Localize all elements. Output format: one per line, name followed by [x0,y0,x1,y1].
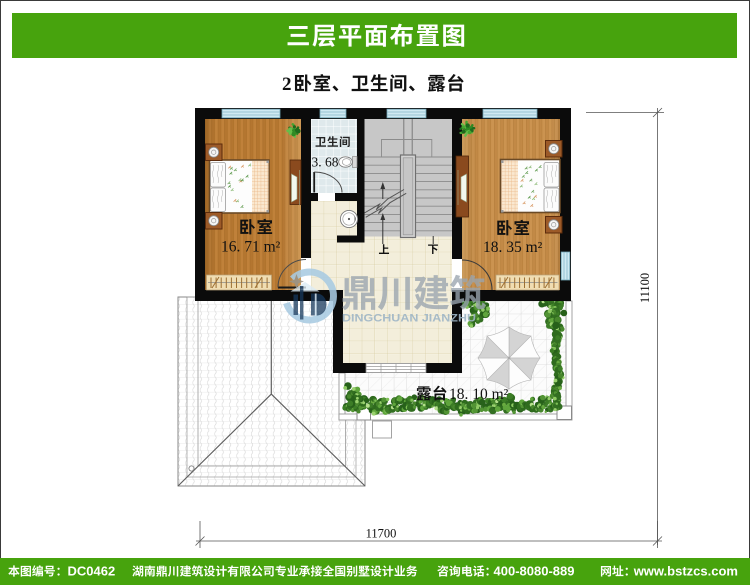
svg-text:11700: 11700 [366,527,397,541]
svg-text:11100: 11100 [638,273,652,303]
svg-text:16. 71 m²: 16. 71 m² [221,239,281,256]
svg-text:3. 68: 3. 68 [312,155,339,170]
svg-text:18. 35 m²: 18. 35 m² [483,239,543,256]
svg-text:DINGCHUAN JIANZHU: DINGCHUAN JIANZHU [342,313,476,325]
svg-text:18. 10 m²: 18. 10 m² [449,386,509,403]
svg-text:www.bstzcs.com: www.bstzcs.com [633,564,738,579]
svg-text:400-8080-889: 400-8080-889 [494,564,575,579]
svg-text:2: 2 [282,74,292,95]
svg-text:DC0462: DC0462 [68,564,116,579]
